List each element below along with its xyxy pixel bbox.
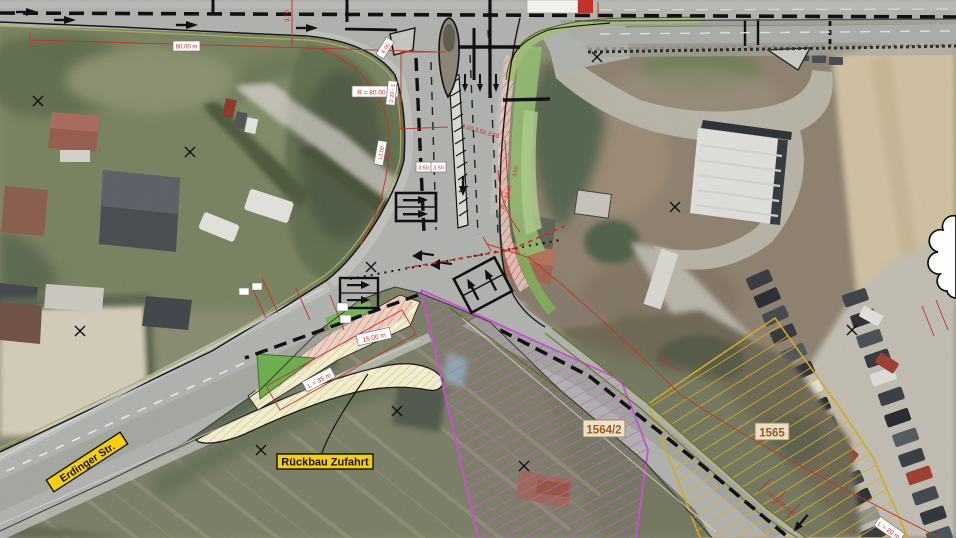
svg-text:1564/2: 1564/2 <box>586 425 621 437</box>
svg-text:1565: 1565 <box>759 428 785 440</box>
svg-text:3.70: 3.70 <box>285 10 291 22</box>
svg-text:3.50: 3.50 <box>418 166 429 172</box>
svg-text:Rückbau Zufahrt: Rückbau Zufahrt <box>281 457 369 469</box>
svg-text:80.00 m: 80.00 m <box>176 45 198 51</box>
svg-text:3.50: 3.50 <box>433 166 444 172</box>
